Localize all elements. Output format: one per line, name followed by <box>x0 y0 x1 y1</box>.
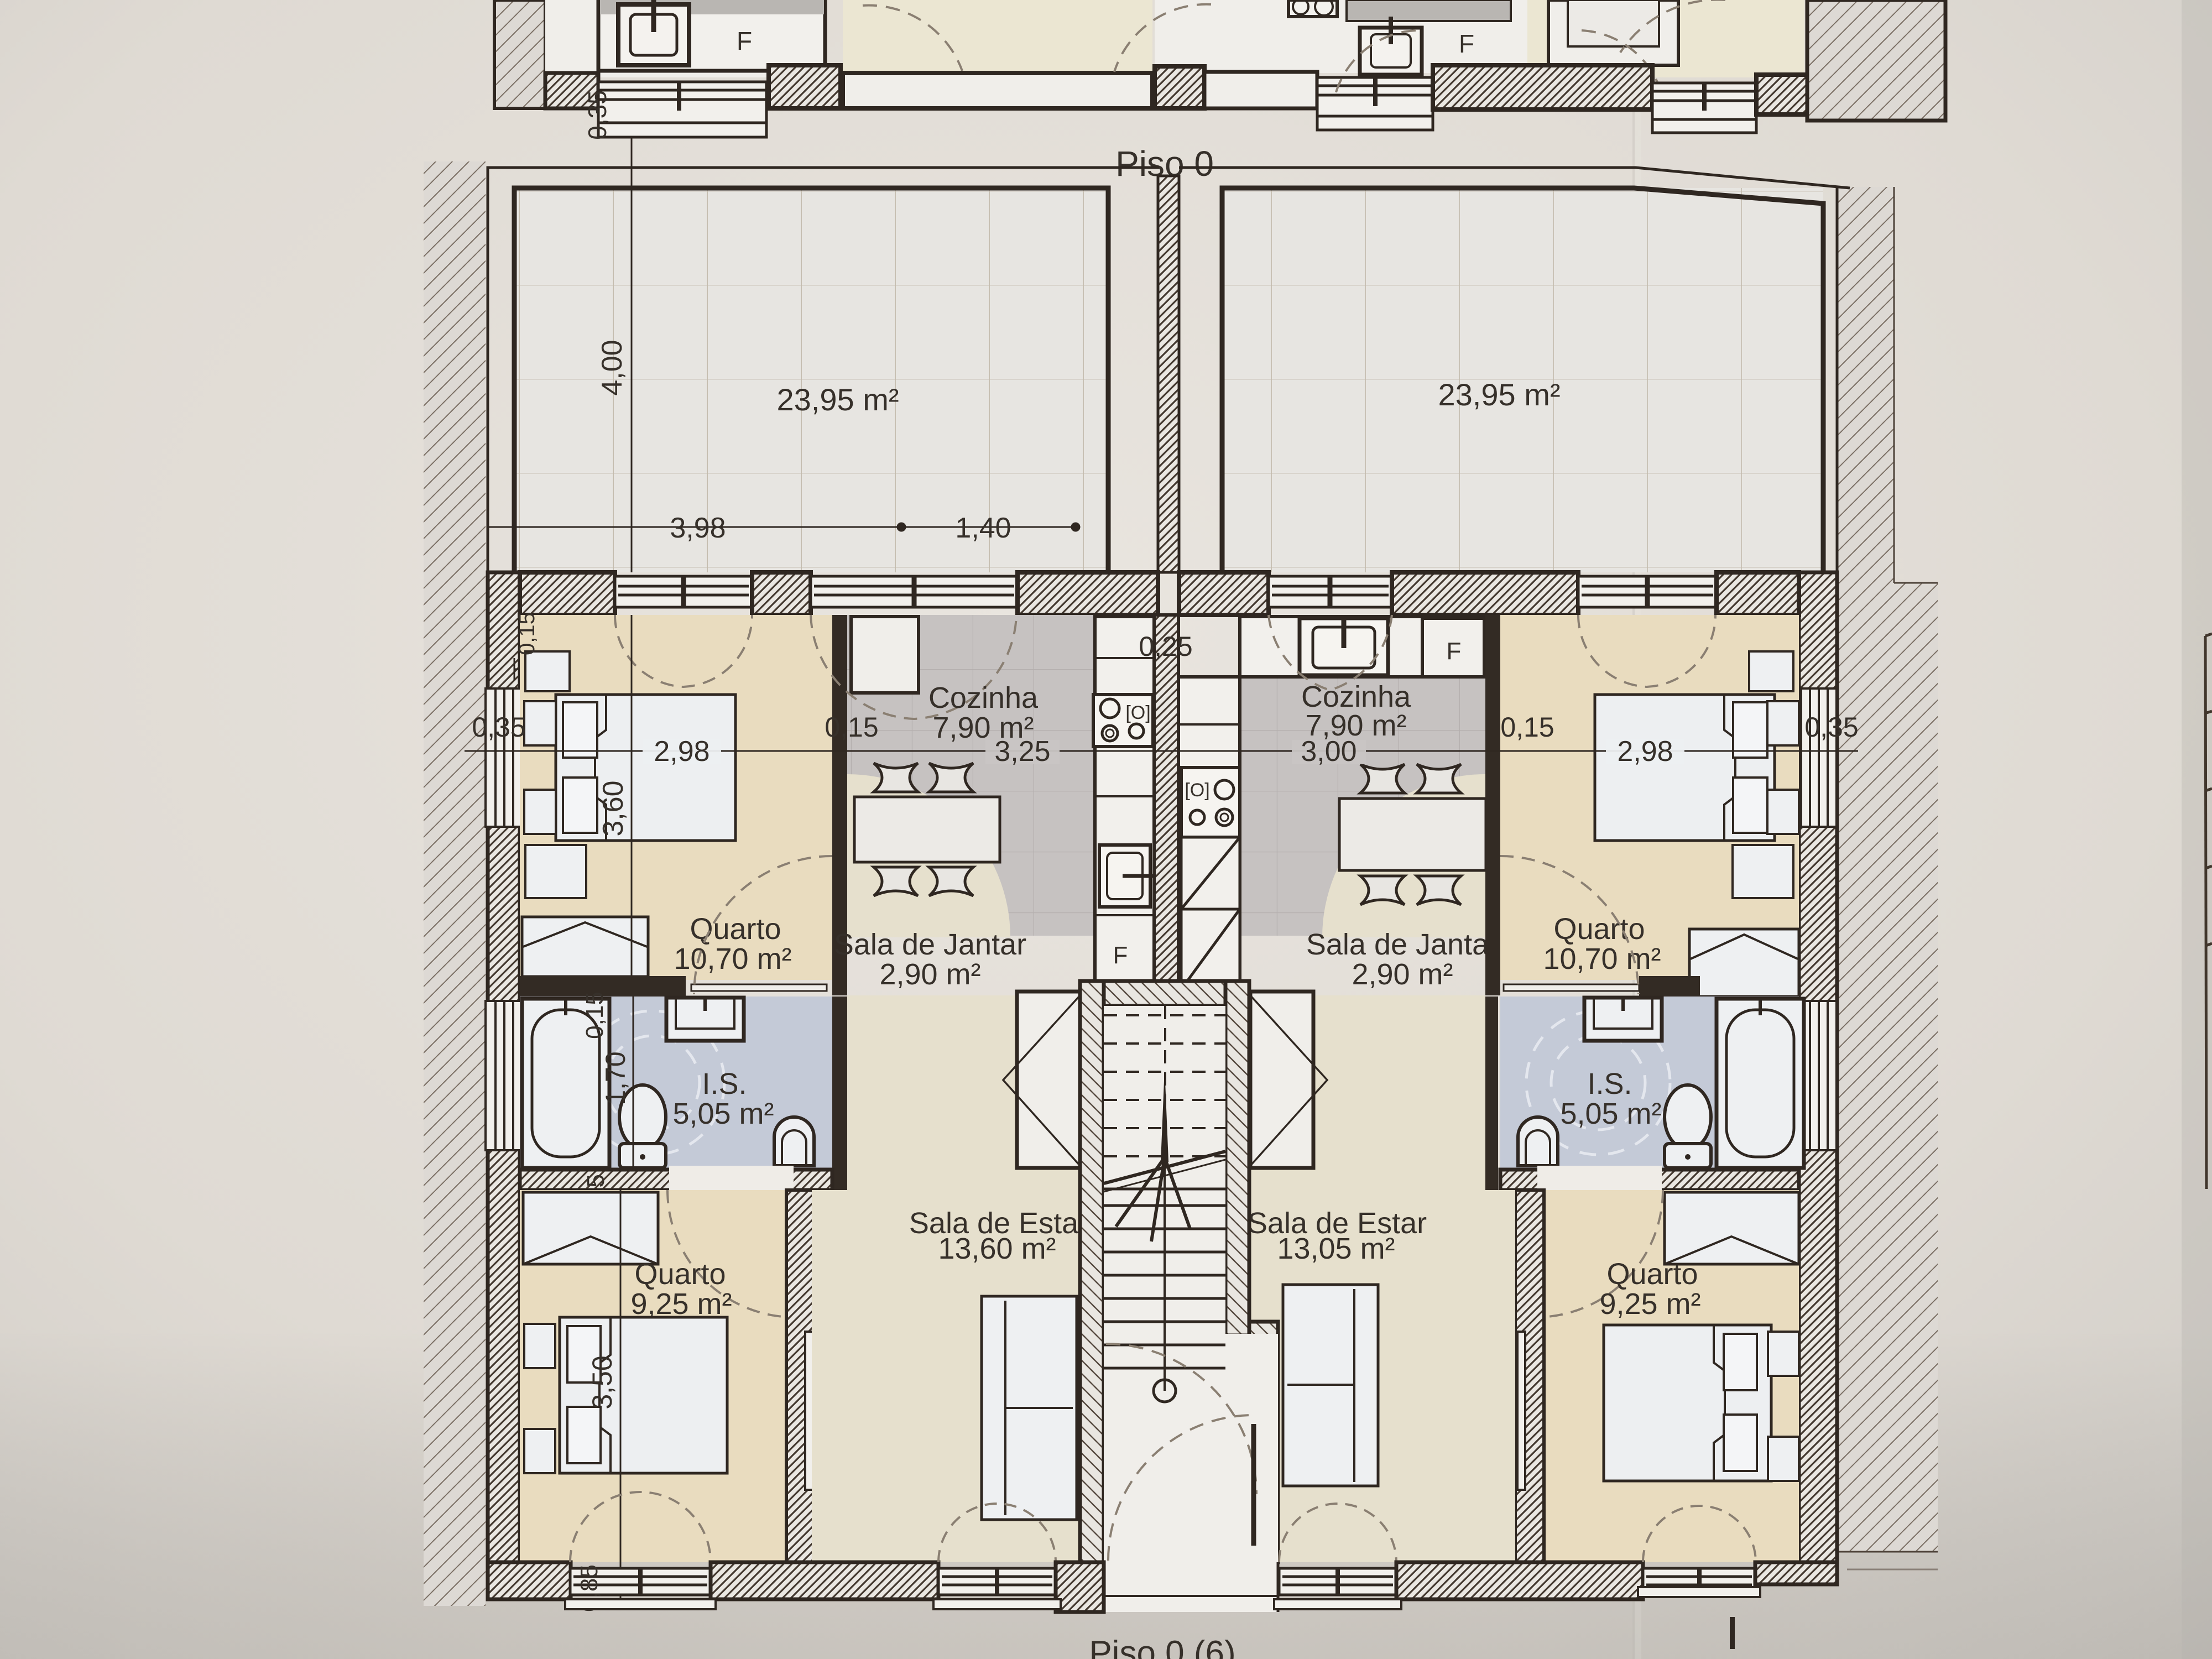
svg-text:Cozinha: Cozinha <box>928 681 1039 714</box>
svg-text:2,90 m²: 2,90 m² <box>1352 958 1453 991</box>
svg-text:0,35: 0,35 <box>1804 712 1858 743</box>
svg-text:Piso 0 (6): Piso 0 (6) <box>1089 1634 1235 1659</box>
svg-text:23,95 m²: 23,95 m² <box>1438 377 1561 412</box>
svg-text:5,05 m²: 5,05 m² <box>672 1097 774 1130</box>
svg-text:[O]: [O] <box>1185 780 1209 801</box>
svg-text:Sala de Jantar: Sala de Jantar <box>834 928 1026 961</box>
svg-text:[O]: [O] <box>1125 702 1150 723</box>
svg-text:2,90 m²: 2,90 m² <box>879 958 980 991</box>
svg-text:13,60 m²: 13,60 m² <box>938 1232 1056 1265</box>
svg-text:13,05 m²: 13,05 m² <box>1277 1232 1395 1265</box>
svg-text:1,70: 1,70 <box>600 1051 631 1105</box>
svg-text:0,25: 0,25 <box>1139 631 1192 662</box>
svg-text:Quarto: Quarto <box>690 912 781 946</box>
svg-text:F: F <box>1113 942 1128 969</box>
svg-text:0,15: 0,15 <box>1500 712 1554 743</box>
svg-text:F: F <box>737 27 752 55</box>
svg-text:9,25 m²: 9,25 m² <box>630 1287 732 1321</box>
svg-text:0,15: 0,15 <box>825 712 878 743</box>
svg-text:1,40: 1,40 <box>955 512 1011 544</box>
svg-text:Quarto: Quarto <box>1606 1258 1698 1291</box>
svg-text:5,05 m²: 5,05 m² <box>1560 1097 1661 1130</box>
svg-text:Cozinha: Cozinha <box>1301 680 1411 713</box>
svg-text:10,70 m²: 10,70 m² <box>1543 942 1661 975</box>
svg-text:9,25 m²: 9,25 m² <box>1599 1287 1700 1321</box>
svg-text:F: F <box>1447 638 1462 665</box>
svg-text:I.S.: I.S. <box>1587 1067 1632 1100</box>
svg-text:3,50: 3,50 <box>587 1355 618 1409</box>
svg-text:0,35: 0,35 <box>472 712 525 743</box>
svg-text:3,60: 3,60 <box>597 780 629 836</box>
svg-text:Sala de Jantar: Sala de Jantar <box>1306 928 1499 961</box>
svg-text:0,15: 0,15 <box>515 612 539 655</box>
svg-text:4,00: 4,00 <box>596 340 628 395</box>
svg-text:Quarto: Quarto <box>1553 912 1645 946</box>
svg-text:0,35: 0,35 <box>583 90 612 140</box>
svg-text:0,15: 0,15 <box>581 992 608 1039</box>
svg-text:3,25: 3,25 <box>994 735 1050 768</box>
svg-text:2,98: 2,98 <box>1617 735 1673 768</box>
svg-text:10,70 m²: 10,70 m² <box>674 942 791 975</box>
svg-text:Quarto: Quarto <box>634 1258 726 1291</box>
svg-text:3,00: 3,00 <box>1301 735 1357 768</box>
svg-text:I.S.: I.S. <box>702 1067 747 1100</box>
svg-text:2,98: 2,98 <box>654 735 709 768</box>
svg-text:F: F <box>1459 29 1474 58</box>
svg-text:3,98: 3,98 <box>670 512 726 544</box>
svg-text:23,95 m²: 23,95 m² <box>777 382 899 417</box>
